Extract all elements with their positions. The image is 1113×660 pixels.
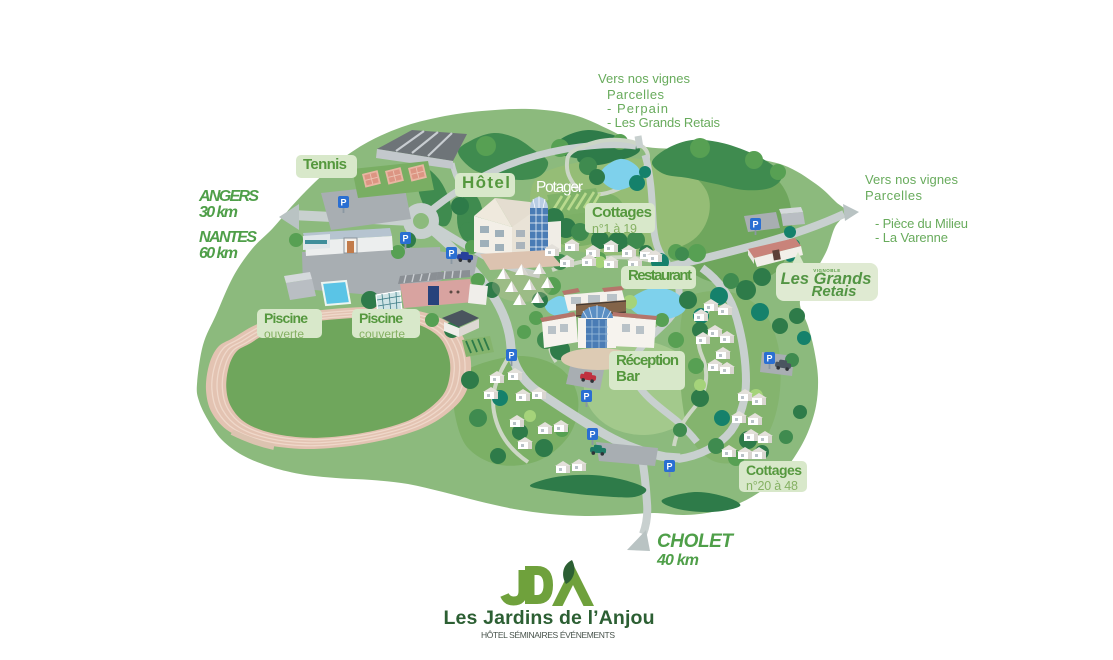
svg-text:60 km: 60 km: [199, 245, 238, 262]
svg-text:P: P: [752, 219, 758, 229]
svg-text:Vers nos vignes: Vers nos vignes: [865, 172, 959, 187]
svg-text:Cottages: Cottages: [592, 204, 652, 221]
svg-text:- Pièce du Milieu: - Pièce du Milieu: [875, 216, 968, 231]
svg-text:Piscine: Piscine: [359, 310, 403, 326]
svg-text:P: P: [402, 233, 408, 243]
svg-text:NANTES: NANTES: [199, 229, 257, 246]
svg-text:Potager: Potager: [536, 179, 583, 196]
svg-text:couverte: couverte: [359, 327, 405, 341]
svg-text:Retais: Retais: [811, 283, 856, 300]
svg-text:Piscine: Piscine: [264, 310, 308, 326]
svg-text:- Perpain: - Perpain: [607, 101, 668, 116]
svg-text:ANGERS: ANGERS: [198, 188, 259, 205]
svg-text:P: P: [589, 429, 595, 439]
svg-text:Parcelles: Parcelles: [607, 87, 665, 102]
svg-text:P: P: [340, 197, 346, 207]
svg-text:n°1 à 19: n°1 à 19: [592, 222, 637, 236]
svg-text:- La Varenne: - La Varenne: [875, 230, 948, 245]
svg-text:Hôtel: Hôtel: [462, 173, 510, 192]
svg-text:Tennis: Tennis: [303, 156, 347, 173]
svg-text:P: P: [666, 461, 672, 471]
svg-text:- Les Grands Retais: - Les Grands Retais: [607, 115, 721, 130]
svg-text:Vers nos vignes: Vers nos vignes: [598, 71, 691, 86]
svg-text:Bar: Bar: [616, 368, 640, 385]
svg-text:40 km: 40 km: [656, 552, 699, 569]
svg-text:Cottages: Cottages: [746, 462, 802, 478]
svg-text:P: P: [766, 353, 772, 363]
svg-text:Restaurant: Restaurant: [628, 267, 692, 284]
svg-text:HÔTEL SÉMINAIRES ÉVÉNEMENTS: HÔTEL SÉMINAIRES ÉVÉNEMENTS: [481, 630, 615, 640]
svg-text:Réception: Réception: [616, 352, 679, 369]
svg-text:P: P: [508, 350, 514, 360]
svg-text:CHOLET: CHOLET: [657, 531, 734, 552]
svg-text:n°20 à 48: n°20 à 48: [746, 479, 798, 493]
svg-text:30 km: 30 km: [199, 204, 238, 221]
svg-text:ouverte: ouverte: [264, 327, 304, 341]
svg-text:P: P: [448, 248, 454, 258]
svg-text:Parcelles: Parcelles: [865, 188, 923, 203]
svg-text:P: P: [583, 391, 589, 401]
svg-text:Les Jardins de l’Anjou: Les Jardins de l’Anjou: [444, 607, 655, 629]
